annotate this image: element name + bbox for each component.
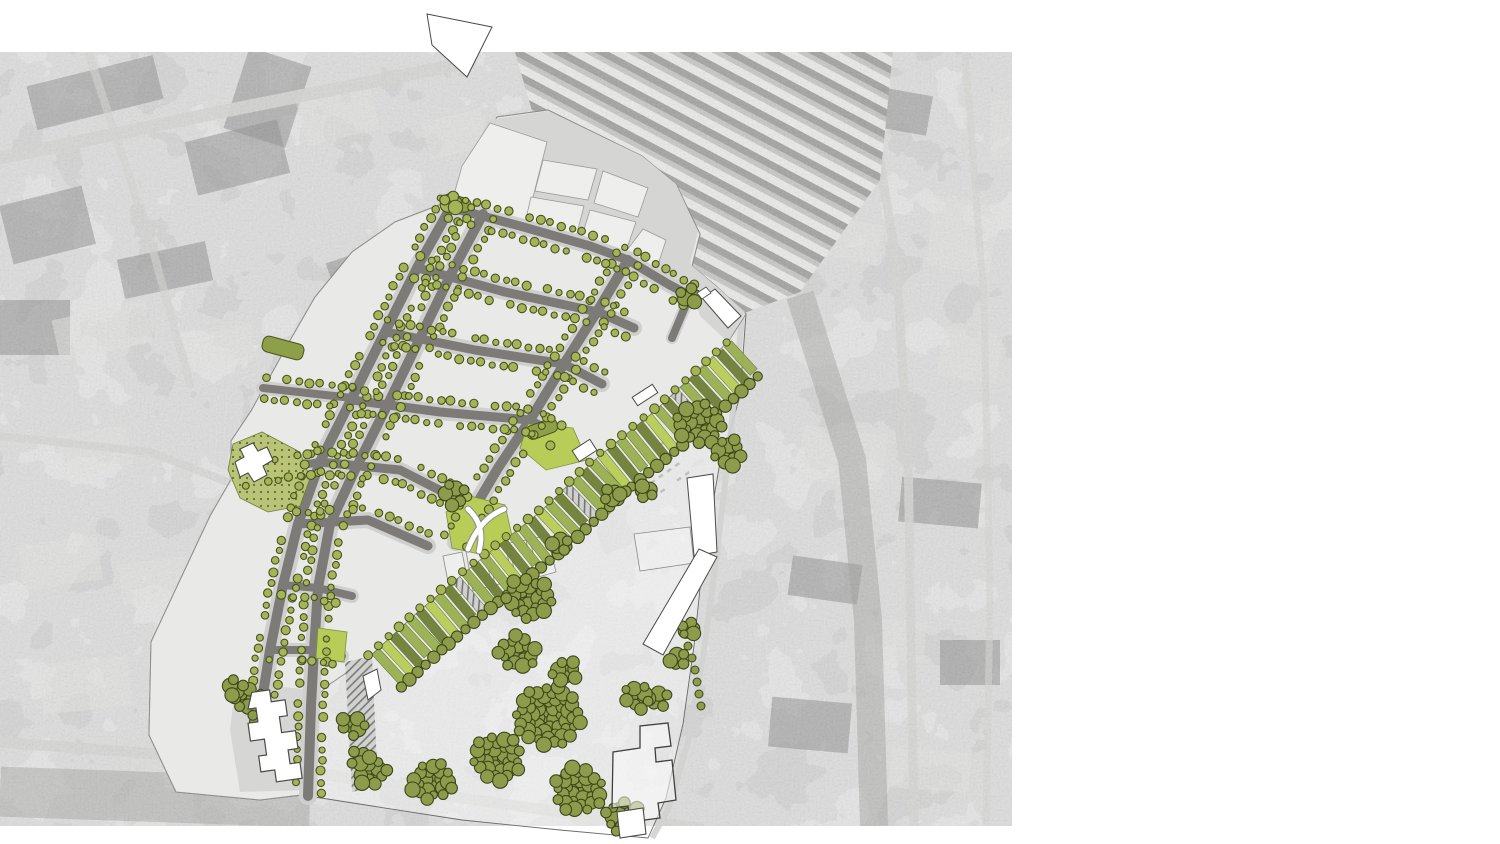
masterplan-figure — [0, 0, 1500, 844]
map-svg — [0, 0, 1500, 844]
small-square-building — [617, 808, 646, 838]
